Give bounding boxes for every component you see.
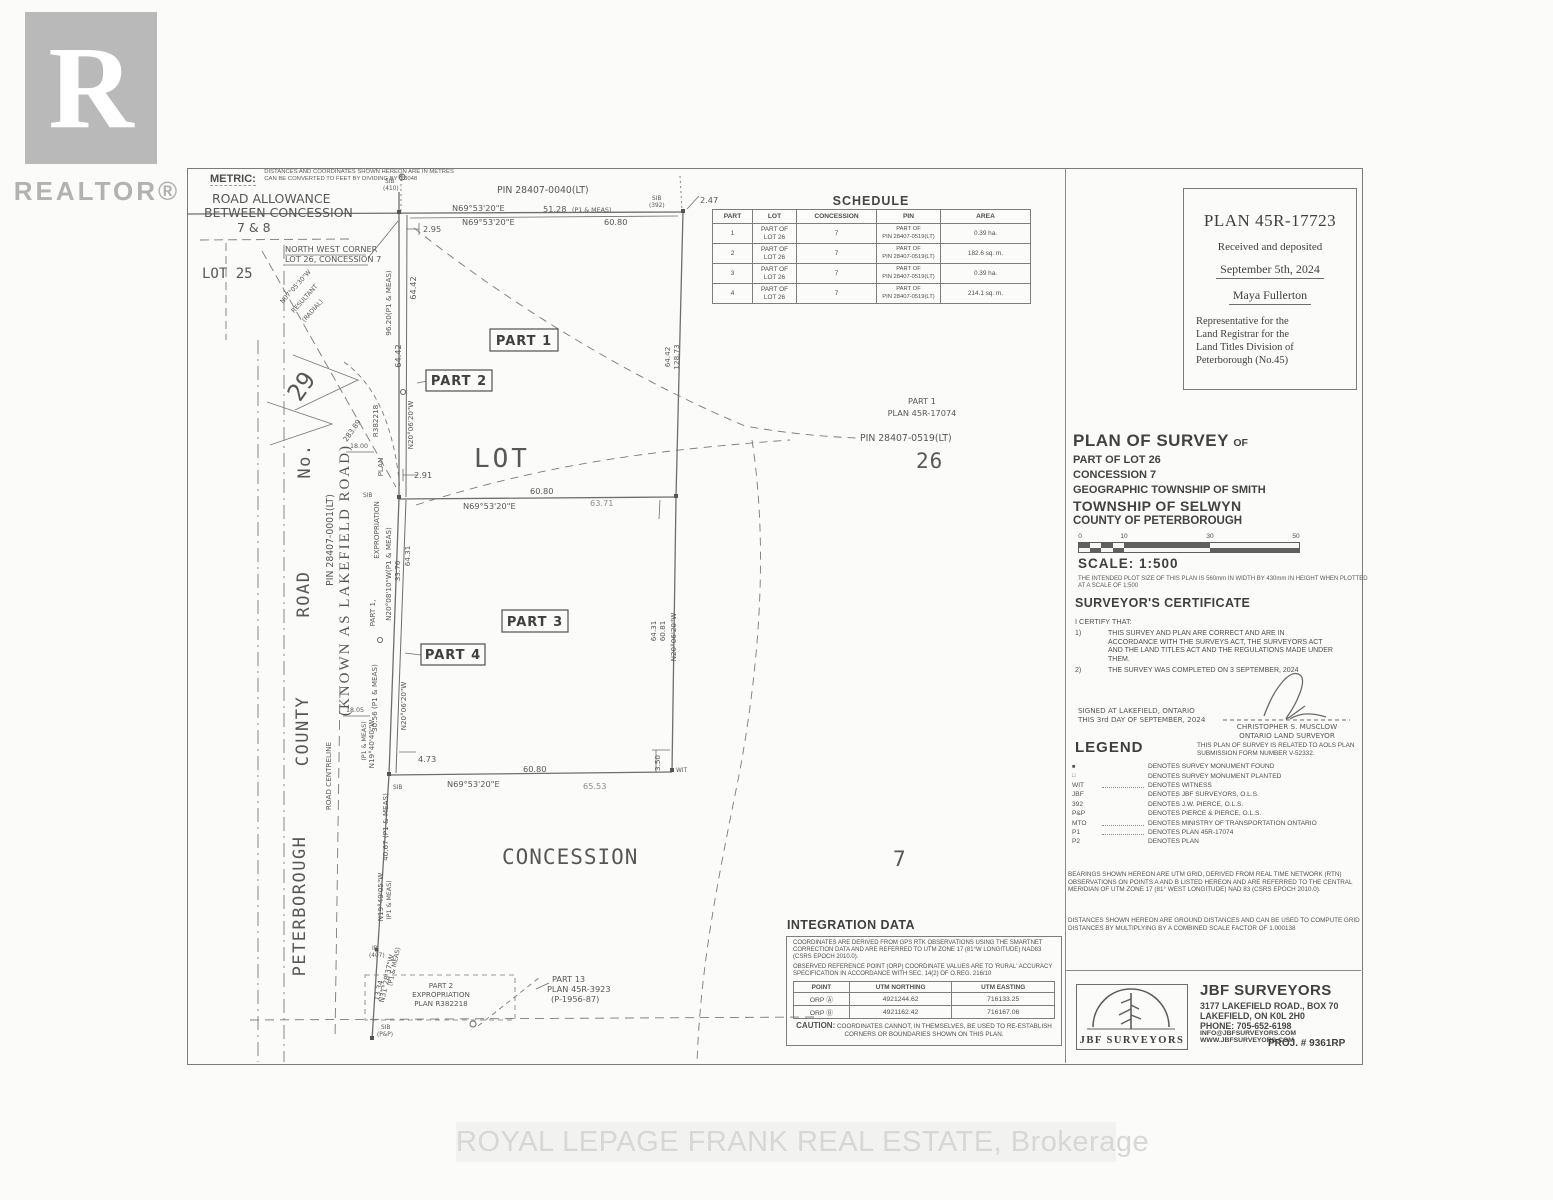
part13-note: PLAN 45R-3923 xyxy=(547,984,611,994)
bearing-label: N69°53'20"E xyxy=(462,217,515,227)
distance-label: 60.80 xyxy=(604,217,627,227)
part1-plan-ref: PLAN 45R-17074 xyxy=(888,408,957,418)
distance-label: 2.95 xyxy=(423,224,441,234)
road-chevron-lines xyxy=(267,355,358,445)
pin-0001-label: PIN 28407-0001(LT) xyxy=(325,494,336,586)
p1-meas-label: (P1 & MEAS) xyxy=(361,721,368,760)
distance-label: 96.20(P1 & MEAS) xyxy=(384,270,393,336)
lot-word: LOT xyxy=(474,444,530,474)
surveyor-title: ONTARIO LAND SURVEYOR xyxy=(1239,731,1335,740)
distance-label: 128.73 xyxy=(672,344,681,369)
monument-label: (P&P) xyxy=(377,1032,393,1038)
distance-label: 64.42 xyxy=(408,276,418,299)
bearing-label: N19°40'40"W xyxy=(367,720,376,769)
monument-label: SIB xyxy=(385,179,394,185)
survey-monuments xyxy=(370,174,685,1040)
monument-label: SIB xyxy=(652,196,661,202)
lot-25-label: LOT 25 xyxy=(202,266,253,282)
distance-label: 60.80 xyxy=(530,486,553,496)
distance-label: 3.50 xyxy=(653,755,662,771)
part-1-label: PART 1 xyxy=(496,334,552,349)
road-name: No. xyxy=(295,443,315,478)
distance-label: 33.76 xyxy=(393,560,402,581)
pin-0519-label: PIN 28407-0519(LT) xyxy=(860,433,952,444)
distance-label: 283.89 xyxy=(341,417,363,443)
distance-label: 64.31 xyxy=(403,546,412,567)
signed-date-line: THIS 3rd DAY OF SEPTEMBER, 2024 xyxy=(1077,715,1206,724)
bearing-label: N20°06'20"W xyxy=(669,613,678,662)
signed-at-line: SIGNED AT LAKEFIELD, ONTARIO xyxy=(1078,706,1195,715)
concession-number: 7 xyxy=(893,847,907,871)
distance-label: 2.47 xyxy=(700,195,718,205)
distance-label: 63.71 xyxy=(590,498,613,508)
distance-label: 4.73 xyxy=(418,754,436,764)
monument-label: (410) xyxy=(383,186,399,192)
monument-label: (407) xyxy=(369,953,385,959)
part-4-label: PART 4 xyxy=(425,648,481,663)
road-alias: (KNOWN AS LAKEFIELD ROAD) xyxy=(337,444,353,716)
monument-label: (392) xyxy=(649,203,665,209)
pin-0040-label: PIN 28407-0040(LT) xyxy=(497,185,589,196)
bearing-label: N20°08'10"W(P1 & MEAS) xyxy=(384,527,393,621)
plan-ref-label: PART 1, xyxy=(368,600,377,627)
road-allowance-note: ROAD ALLOWANCE xyxy=(212,191,331,206)
part2-expropriation-note: EXPROPRIATION xyxy=(412,990,470,999)
road-name: PETERBOROUGH xyxy=(290,836,310,977)
signature-stroke xyxy=(1264,674,1326,719)
plan-ref-label: EXPROPRIATION xyxy=(372,501,381,559)
plan-ref-label: PLAN xyxy=(376,458,385,477)
nw-corner-note: NORTH WEST CORNER xyxy=(285,244,378,254)
bearing-label: N19°49'05"W xyxy=(376,873,385,922)
road-name: ROAD xyxy=(294,571,314,618)
distance-label: 40.67 (P1 & MEAS) xyxy=(381,793,390,861)
road-allowance-note: 7 & 8 xyxy=(237,220,271,235)
lot-number: 26 xyxy=(916,449,943,473)
surveyor-signature xyxy=(1223,674,1350,720)
p1-meas-label: (P1 & MEAS) xyxy=(572,207,611,214)
part-3-label: PART 3 xyxy=(507,615,563,630)
part13-note: (P-1956-87) xyxy=(551,994,599,1004)
part1-plan-ref: PART 1 xyxy=(908,396,936,406)
part2-expropriation-note: PLAN R382218 xyxy=(414,999,468,1008)
distance-label: 51.28 xyxy=(543,204,566,214)
distance-label: 60.81 xyxy=(658,621,667,642)
distance-label: 64.42 xyxy=(663,347,672,368)
plan-ref-label: R382218 xyxy=(371,404,380,437)
surveyor-name: CHRISTOPHER S. MUSCLOW xyxy=(1237,722,1337,731)
distance-label: 2.91 xyxy=(414,470,432,480)
survey-drawing: PART 1 PART 2 PART 3 PART 4 PIN 28407-00… xyxy=(0,0,1553,1200)
witness-label: WIT xyxy=(676,768,687,774)
monument-label: SIB xyxy=(381,1025,390,1031)
distance-label: 60.80 xyxy=(523,764,546,774)
road-name: COUNTY xyxy=(293,696,313,766)
part-label-boxes: PART 1 PART 2 PART 3 PART 4 xyxy=(421,329,568,665)
survey-plan-page: { "page": { "watermark": "ROYAL LEPAGE F… xyxy=(0,0,1553,1200)
bearing-label: N20°06'20"W xyxy=(406,401,415,450)
p1-meas-label: (P1 & MEAS) xyxy=(386,880,393,919)
bearing-label: N69°53'20"E xyxy=(447,779,500,789)
distance-label: 64.42 xyxy=(393,344,403,367)
bearing-label: N69°53'20"E xyxy=(452,203,505,213)
part2-expropriation-note: PART 2 xyxy=(429,981,454,990)
bearing-label: N20°06'20"W xyxy=(399,682,408,731)
distance-label: 65.53 xyxy=(583,781,606,791)
bearing-label: N69°53'20"E xyxy=(463,501,516,511)
monument-label: SIB xyxy=(393,785,402,791)
part-2-label: PART 2 xyxy=(431,374,487,389)
road-allowance-note: BETWEEN CONCESSION xyxy=(204,205,353,220)
nw-corner-note: LOT 26, CONCESSION 7 xyxy=(285,254,381,264)
monument-label: SIB xyxy=(363,493,372,499)
parcel-boundary-lines xyxy=(187,192,683,1040)
monument-label: IB xyxy=(372,946,378,952)
road-centreline-label: ROAD CENTRELINE xyxy=(324,741,333,810)
concession-word: CONCESSION xyxy=(502,845,638,869)
distance-label: 64.31 xyxy=(649,621,658,642)
part13-note: PART 13 xyxy=(552,974,585,984)
road-limit-dashed-lines xyxy=(200,174,682,1062)
